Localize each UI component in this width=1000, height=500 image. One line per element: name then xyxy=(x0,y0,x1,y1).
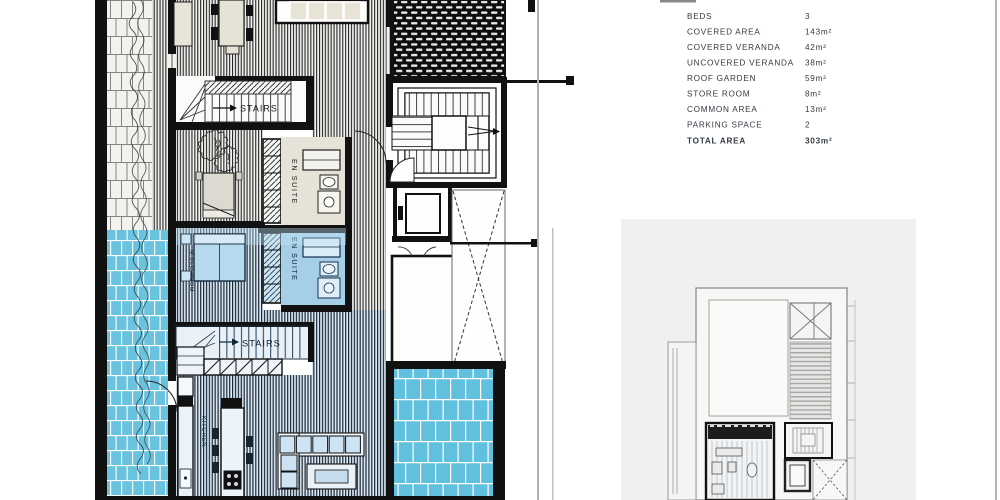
svg-text:59m²: 59m² xyxy=(805,74,827,83)
svg-text:UNCOVERED VERANDA: UNCOVERED VERANDA xyxy=(687,59,794,68)
svg-text:8m²: 8m² xyxy=(805,90,821,99)
svg-text:TOTAL AREA: TOTAL AREA xyxy=(687,137,746,146)
svg-text:STAIRS: STAIRS xyxy=(240,104,278,114)
svg-text:STORE ROOM: STORE ROOM xyxy=(687,90,750,99)
svg-text:42m²: 42m² xyxy=(805,43,827,52)
svg-text:STAIRS: STAIRS xyxy=(242,339,281,349)
svg-text:BEDS: BEDS xyxy=(687,12,712,21)
svg-text:KITCHEN: KITCHEN xyxy=(200,416,206,447)
svg-text:13m²: 13m² xyxy=(805,105,827,114)
svg-text:COMMON AREA: COMMON AREA xyxy=(687,105,758,114)
svg-text:EN SUITE: EN SUITE xyxy=(290,159,299,205)
svg-text:COVERED VERANDA: COVERED VERANDA xyxy=(687,43,781,52)
svg-text:143m²: 143m² xyxy=(805,28,832,37)
svg-text:2: 2 xyxy=(805,121,810,130)
svg-text:PARKING SPACE: PARKING SPACE xyxy=(687,121,762,130)
svg-text:COVERED AREA: COVERED AREA xyxy=(687,28,761,37)
svg-text:38m²: 38m² xyxy=(805,59,827,68)
svg-text:ROOF GARDEN: ROOF GARDEN xyxy=(687,74,756,83)
svg-text:3: 3 xyxy=(805,12,810,21)
svg-text:M.BED ROOM: M.BED ROOM xyxy=(188,250,194,292)
svg-text:303m²: 303m² xyxy=(805,137,832,146)
